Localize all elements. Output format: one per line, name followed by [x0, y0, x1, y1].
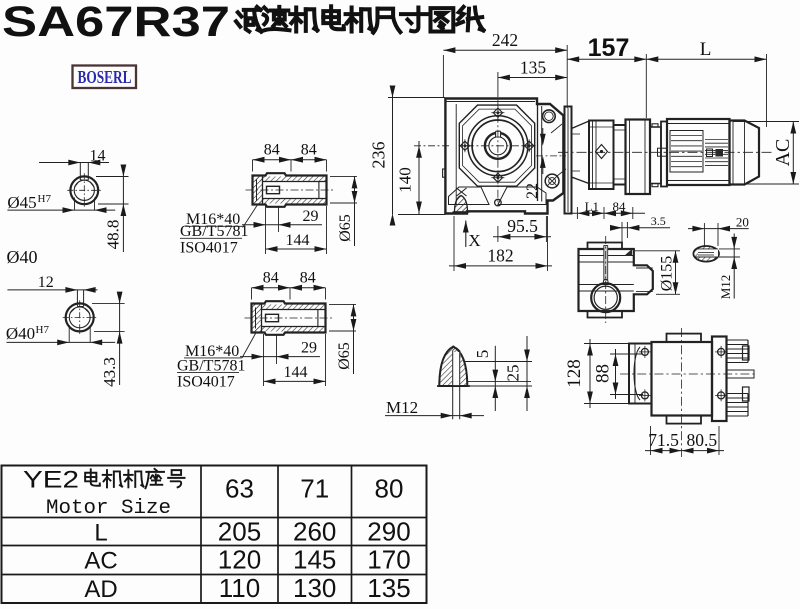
- svg-text:Ø155: Ø155: [658, 256, 675, 292]
- svg-text:110: 110: [219, 573, 260, 603]
- svg-text:AC: AC: [84, 548, 117, 575]
- svg-text:GB/T5781: GB/T5781: [177, 358, 245, 375]
- svg-text:Ø65: Ø65: [336, 342, 353, 370]
- svg-text:M12: M12: [386, 398, 418, 417]
- svg-text:3.5: 3.5: [651, 214, 666, 228]
- svg-text:205: 205: [218, 517, 261, 547]
- svg-text:63: 63: [225, 474, 254, 504]
- svg-text:88: 88: [593, 364, 614, 383]
- svg-text:95.5: 95.5: [507, 216, 538, 236]
- svg-text:20: 20: [736, 215, 749, 230]
- svg-text:84: 84: [301, 142, 317, 159]
- svg-text:48.8: 48.8: [104, 220, 123, 250]
- svg-text:71.5: 71.5: [648, 430, 679, 450]
- svg-text:120: 120: [218, 545, 261, 575]
- svg-text:AD: AD: [84, 576, 117, 603]
- svg-text:L: L: [94, 520, 107, 547]
- svg-text:Ø40: Ø40: [7, 247, 38, 267]
- svg-text:71: 71: [300, 474, 329, 504]
- svg-text:242: 242: [492, 30, 518, 50]
- svg-text:135: 135: [367, 573, 410, 603]
- svg-text:X: X: [468, 231, 480, 250]
- svg-text:135: 135: [520, 58, 547, 78]
- svg-text:144: 144: [286, 232, 310, 249]
- svg-text:12: 12: [38, 274, 54, 291]
- svg-text:YE2: YE2: [23, 467, 79, 494]
- svg-text:144: 144: [284, 364, 308, 381]
- svg-text:29: 29: [303, 208, 319, 225]
- svg-text:80: 80: [375, 474, 404, 504]
- svg-text:BOSERL: BOSERL: [78, 67, 132, 87]
- svg-text:25: 25: [504, 365, 523, 382]
- svg-text:GB/T5781: GB/T5781: [180, 223, 248, 240]
- svg-text:29: 29: [301, 340, 317, 357]
- svg-text:84: 84: [263, 270, 279, 287]
- svg-text:Motor Size: Motor Size: [46, 497, 171, 520]
- svg-text:ISO4017: ISO4017: [177, 373, 235, 390]
- svg-text:Ø45: Ø45: [7, 193, 36, 212]
- svg-text:SA67R37: SA67R37: [2, 0, 230, 46]
- svg-text:5: 5: [473, 350, 492, 359]
- svg-text:43.3: 43.3: [100, 357, 119, 387]
- svg-text:84: 84: [613, 199, 627, 214]
- svg-text:AC: AC: [772, 139, 794, 167]
- svg-text:84: 84: [300, 270, 316, 287]
- svg-text:182: 182: [487, 246, 513, 266]
- svg-text:140: 140: [396, 167, 415, 193]
- svg-text:260: 260: [293, 517, 336, 547]
- svg-text:80.5: 80.5: [686, 430, 717, 450]
- svg-text:290: 290: [367, 517, 410, 547]
- svg-text:145: 145: [293, 545, 336, 575]
- svg-text:84: 84: [264, 142, 280, 159]
- svg-text:L1: L1: [585, 199, 599, 214]
- svg-text:22: 22: [524, 183, 541, 199]
- svg-text:ISO4017: ISO4017: [180, 240, 238, 257]
- svg-text:H7: H7: [38, 193, 52, 205]
- svg-text:M12: M12: [718, 275, 733, 300]
- svg-text:L: L: [700, 39, 712, 60]
- svg-text:Ø40: Ø40: [6, 324, 35, 343]
- svg-text:H7: H7: [36, 324, 50, 336]
- svg-text:170: 170: [367, 545, 410, 575]
- svg-text:157: 157: [588, 34, 630, 62]
- svg-text:128: 128: [564, 359, 585, 388]
- svg-text:130: 130: [293, 573, 336, 603]
- svg-text:236: 236: [369, 142, 389, 169]
- svg-text:Ø65: Ø65: [337, 214, 354, 242]
